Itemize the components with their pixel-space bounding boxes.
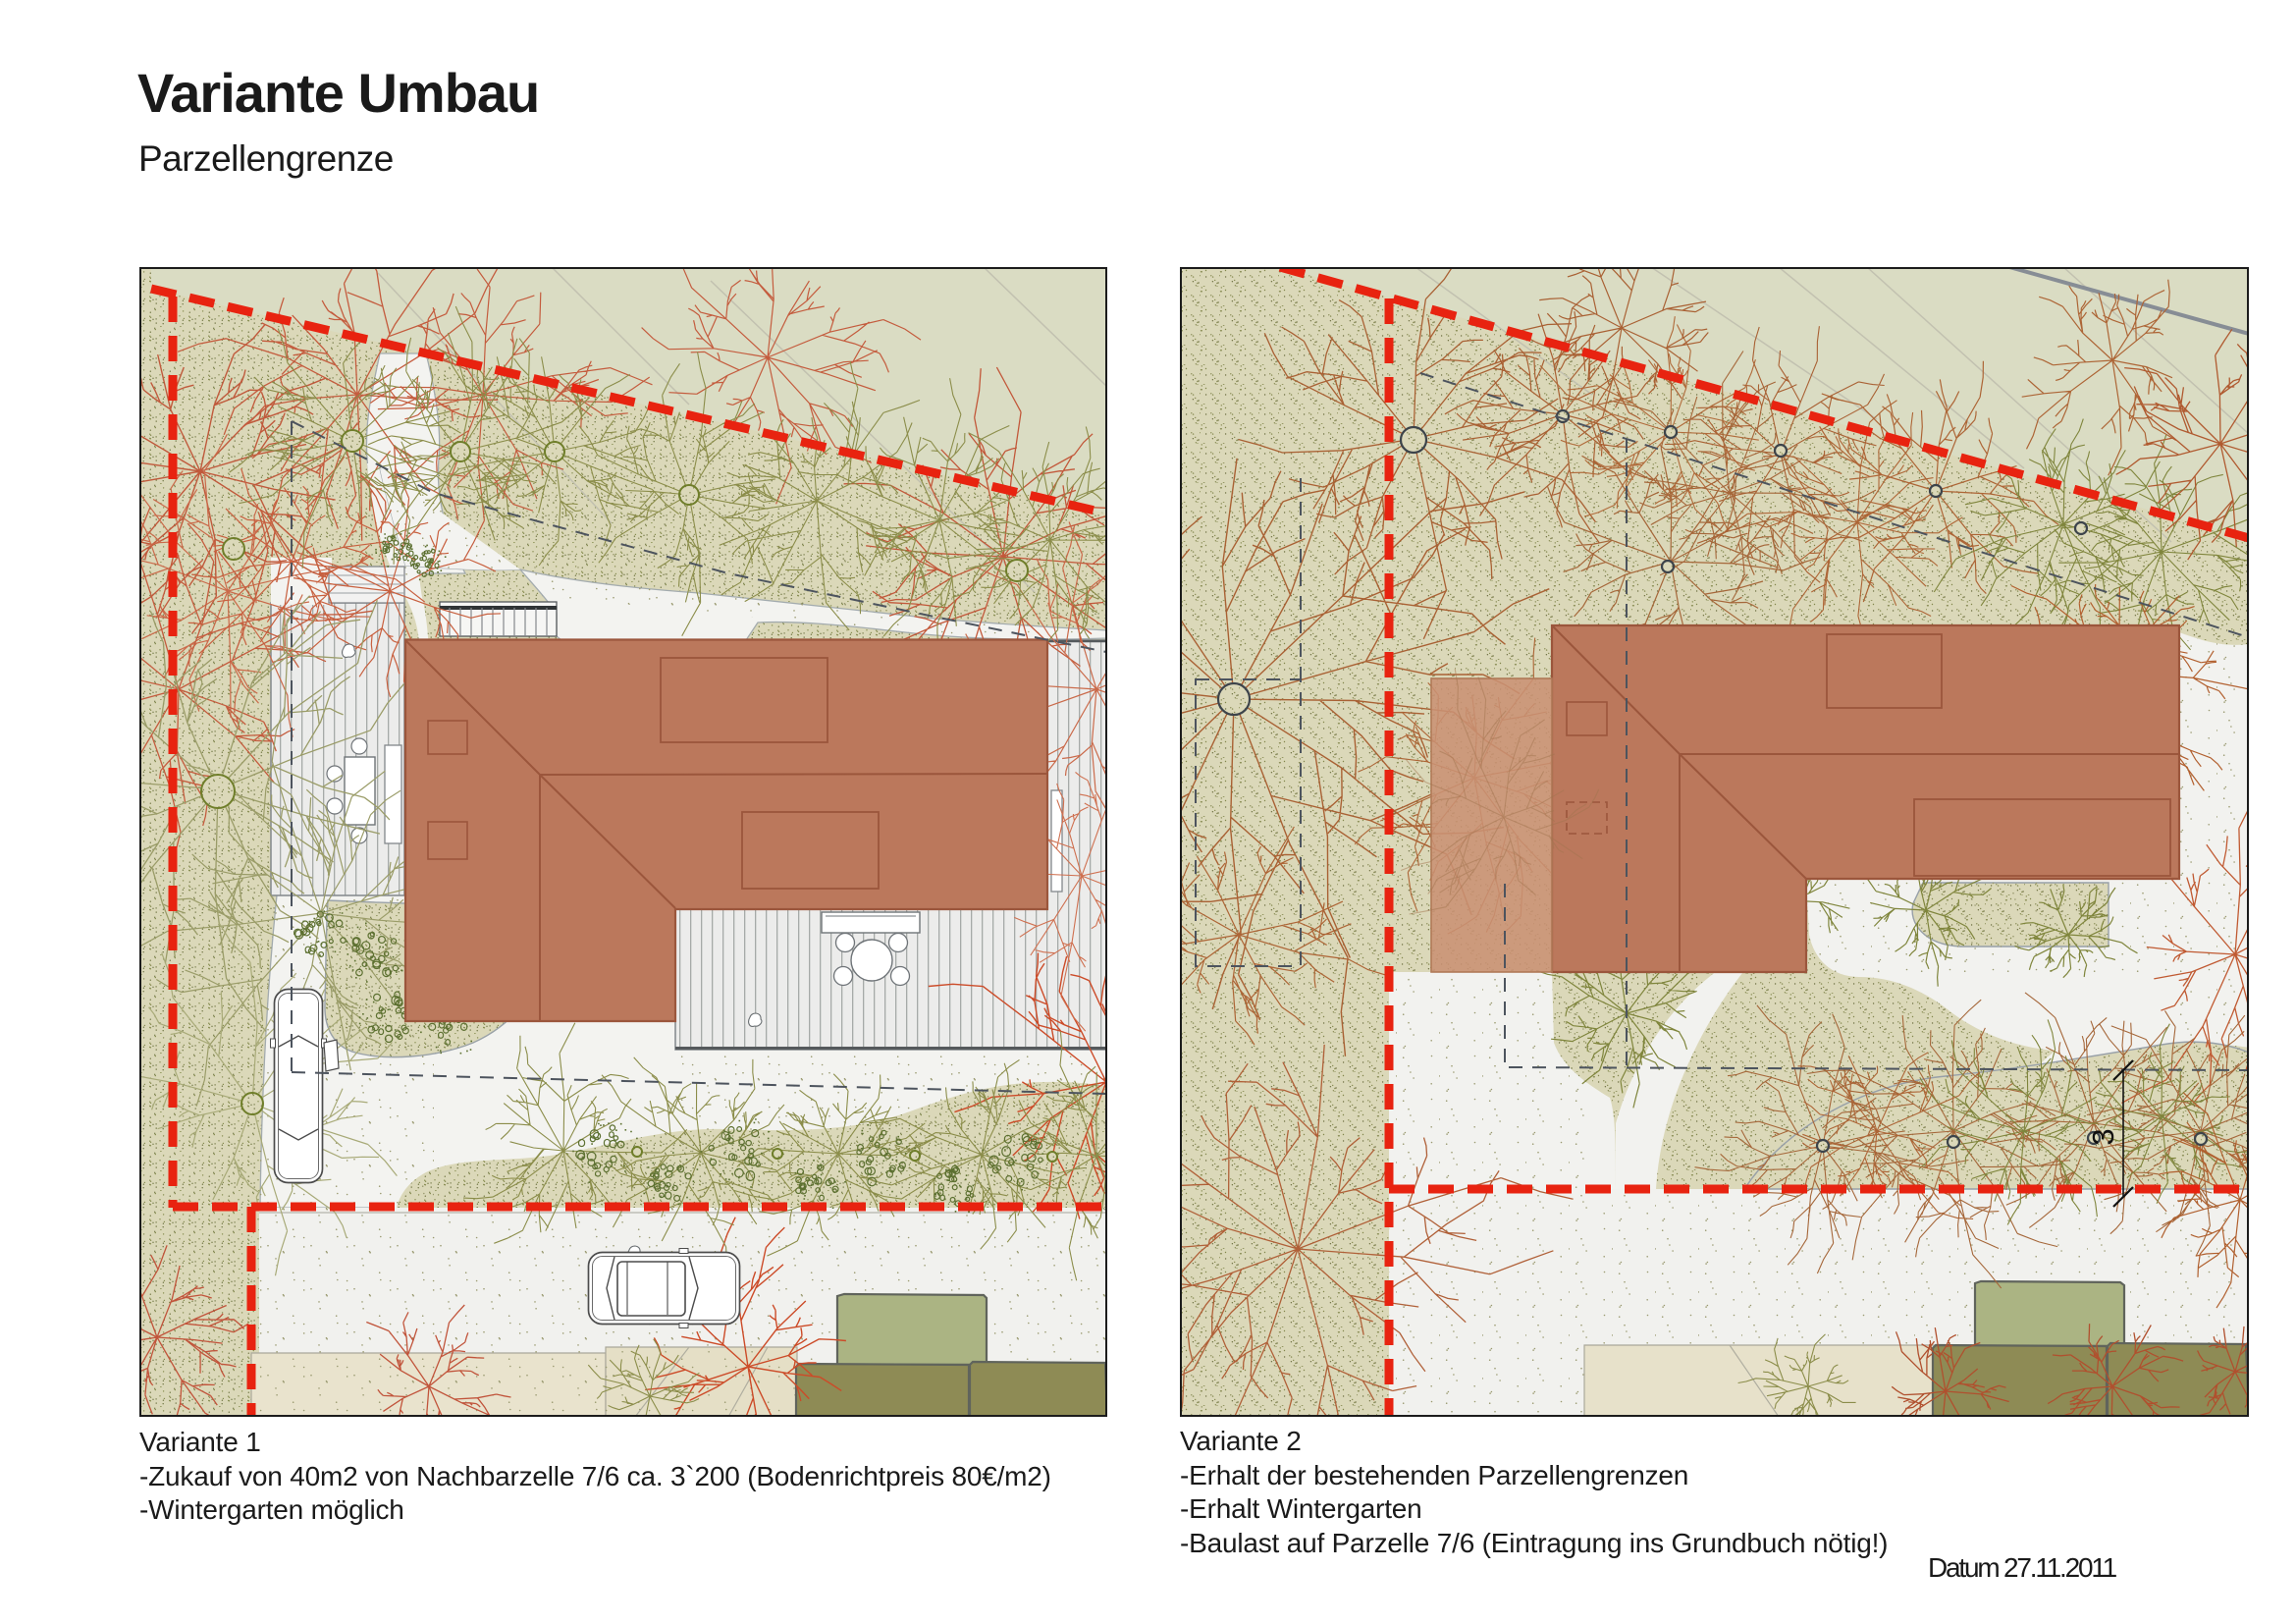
svg-text:3: 3 [2086, 1128, 2120, 1145]
